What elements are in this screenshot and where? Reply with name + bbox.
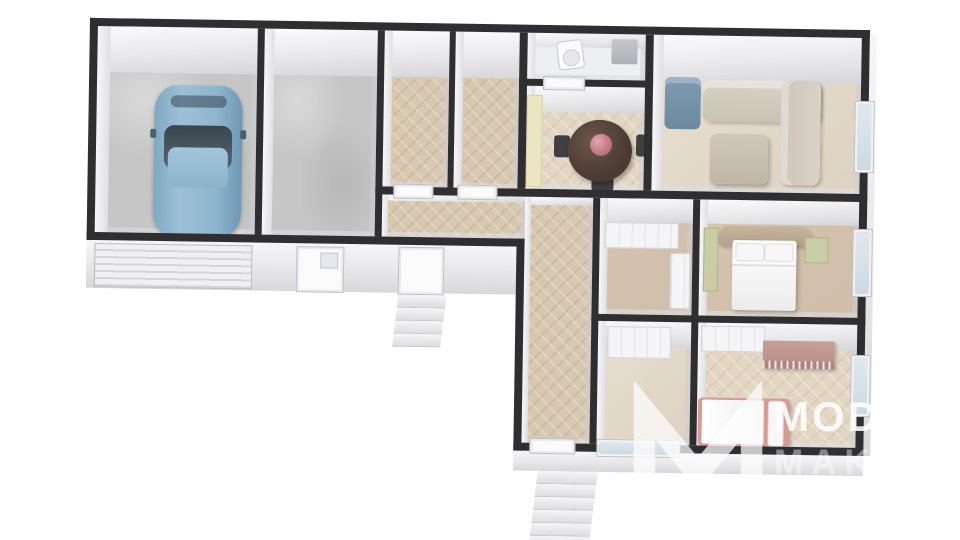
bedroom2-white-wardrobe xyxy=(701,325,765,352)
watermark: MODER MAKLÉ xyxy=(632,382,945,532)
garage-door xyxy=(94,243,253,289)
entrance-steps xyxy=(527,471,598,540)
room-garage-storage xyxy=(262,29,378,237)
bed1-pillow xyxy=(735,243,764,261)
car-mirror-left xyxy=(150,129,156,138)
sofa-side-section xyxy=(779,81,821,186)
flower-bouquet xyxy=(590,134,612,156)
door-small-room-1 xyxy=(393,184,433,200)
closet-wardrobe xyxy=(604,222,678,249)
car-mirror-right xyxy=(240,130,246,139)
watermark-brand-line2: MAKLÉ xyxy=(774,445,945,480)
entrance-door xyxy=(529,438,575,455)
floor-plan-render: MODER MAKLÉ xyxy=(0,0,960,540)
bed1-blanket-fold xyxy=(732,264,796,267)
car xyxy=(153,85,243,238)
watermark-brand-line1: MODER xyxy=(774,396,945,438)
bed1-mattress xyxy=(732,240,797,311)
wc-cabinet xyxy=(611,39,637,64)
storage-entry-door xyxy=(296,246,345,293)
door-window-pane xyxy=(320,252,338,268)
hallway-horizontal xyxy=(382,194,526,238)
window-living xyxy=(855,102,874,172)
car-roof xyxy=(167,147,228,188)
ottoman xyxy=(710,134,769,185)
kitchen-counter xyxy=(525,95,542,187)
bed1-pillow xyxy=(764,243,793,261)
cabinet-slats xyxy=(763,360,835,369)
toilet-seat xyxy=(562,48,581,67)
door-small-room-2 xyxy=(457,185,497,201)
hallway-side-door xyxy=(398,247,445,296)
hallway-vertical xyxy=(521,197,593,444)
window-bedroom-1 xyxy=(853,230,872,296)
bed1-nightstand xyxy=(804,237,828,263)
room-small-1 xyxy=(382,30,449,187)
room-small-2 xyxy=(453,32,519,189)
m-monogram-icon xyxy=(632,382,764,532)
bedroom2-mauve-cabinet xyxy=(763,340,835,369)
car-rear-window xyxy=(171,95,227,108)
armchair xyxy=(664,77,701,130)
side-steps xyxy=(392,295,446,348)
wardrobe xyxy=(607,326,671,359)
bedroom1-wardrobe-green xyxy=(703,228,719,292)
door-dining xyxy=(543,76,585,91)
toilet xyxy=(556,39,585,71)
closet-side-panel xyxy=(670,253,691,309)
